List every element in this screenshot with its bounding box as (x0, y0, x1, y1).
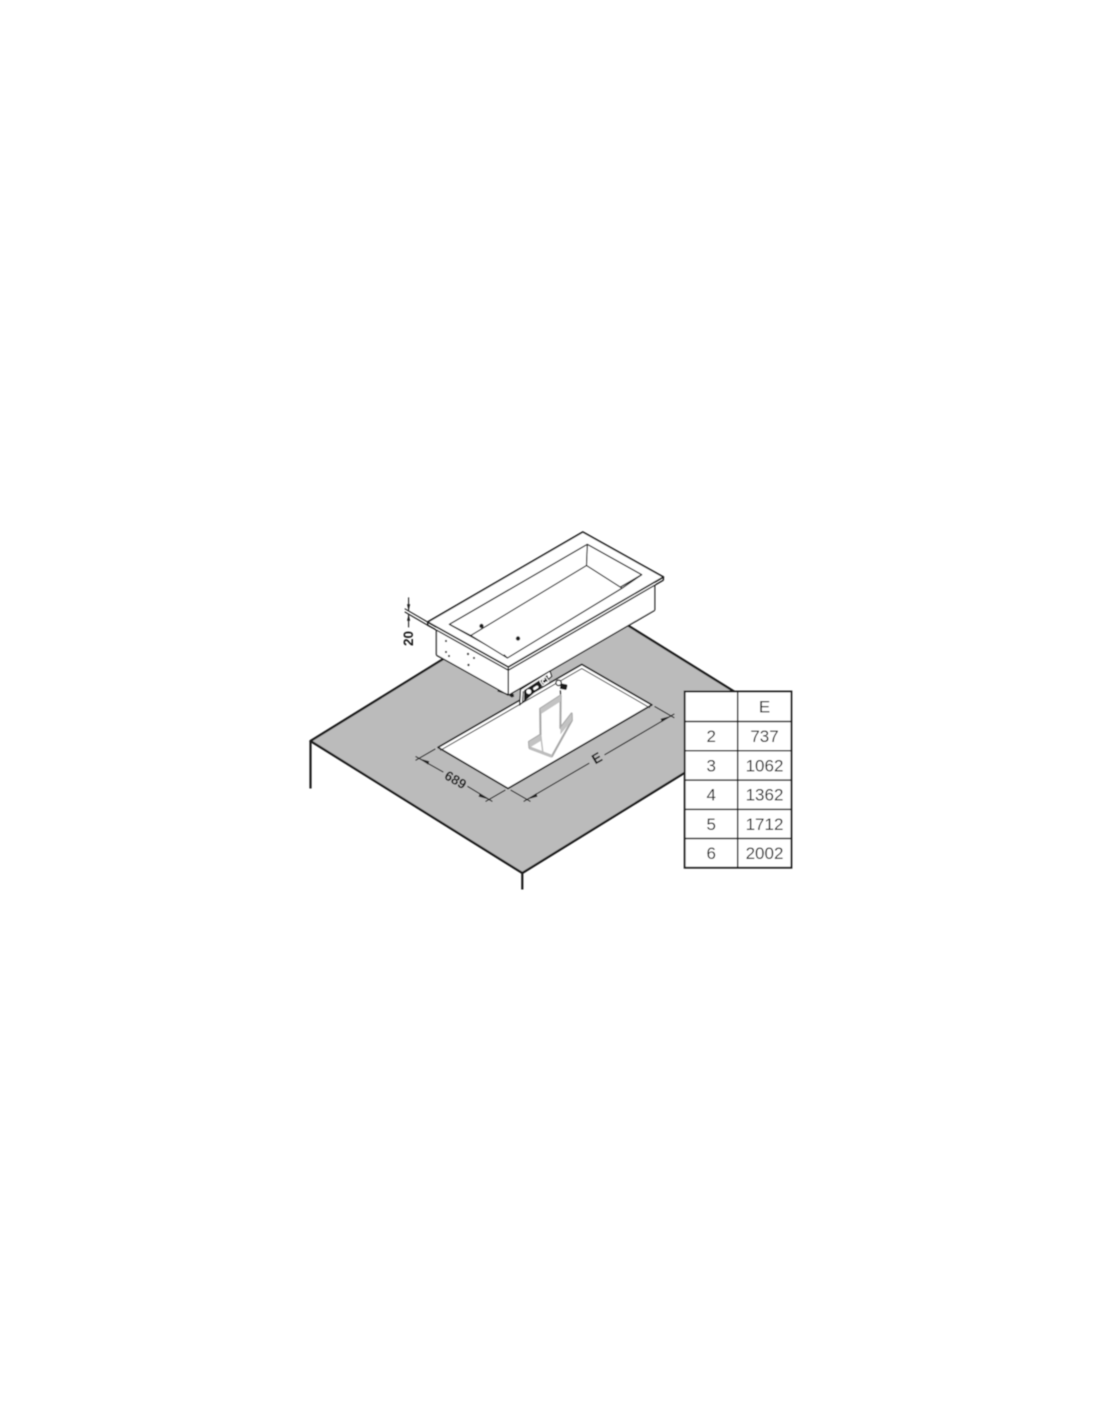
svg-text:E: E (759, 698, 770, 717)
svg-text:1062: 1062 (746, 756, 784, 775)
svg-text:20: 20 (401, 631, 416, 646)
svg-text:6: 6 (706, 844, 715, 863)
svg-text:4: 4 (706, 786, 715, 805)
svg-text:737: 737 (750, 727, 778, 746)
svg-text:5: 5 (706, 815, 715, 834)
svg-text:1362: 1362 (746, 786, 784, 805)
svg-text:2002: 2002 (746, 844, 784, 863)
svg-text:1712: 1712 (746, 815, 784, 834)
svg-text:2: 2 (706, 727, 715, 746)
svg-text:3: 3 (706, 756, 715, 775)
